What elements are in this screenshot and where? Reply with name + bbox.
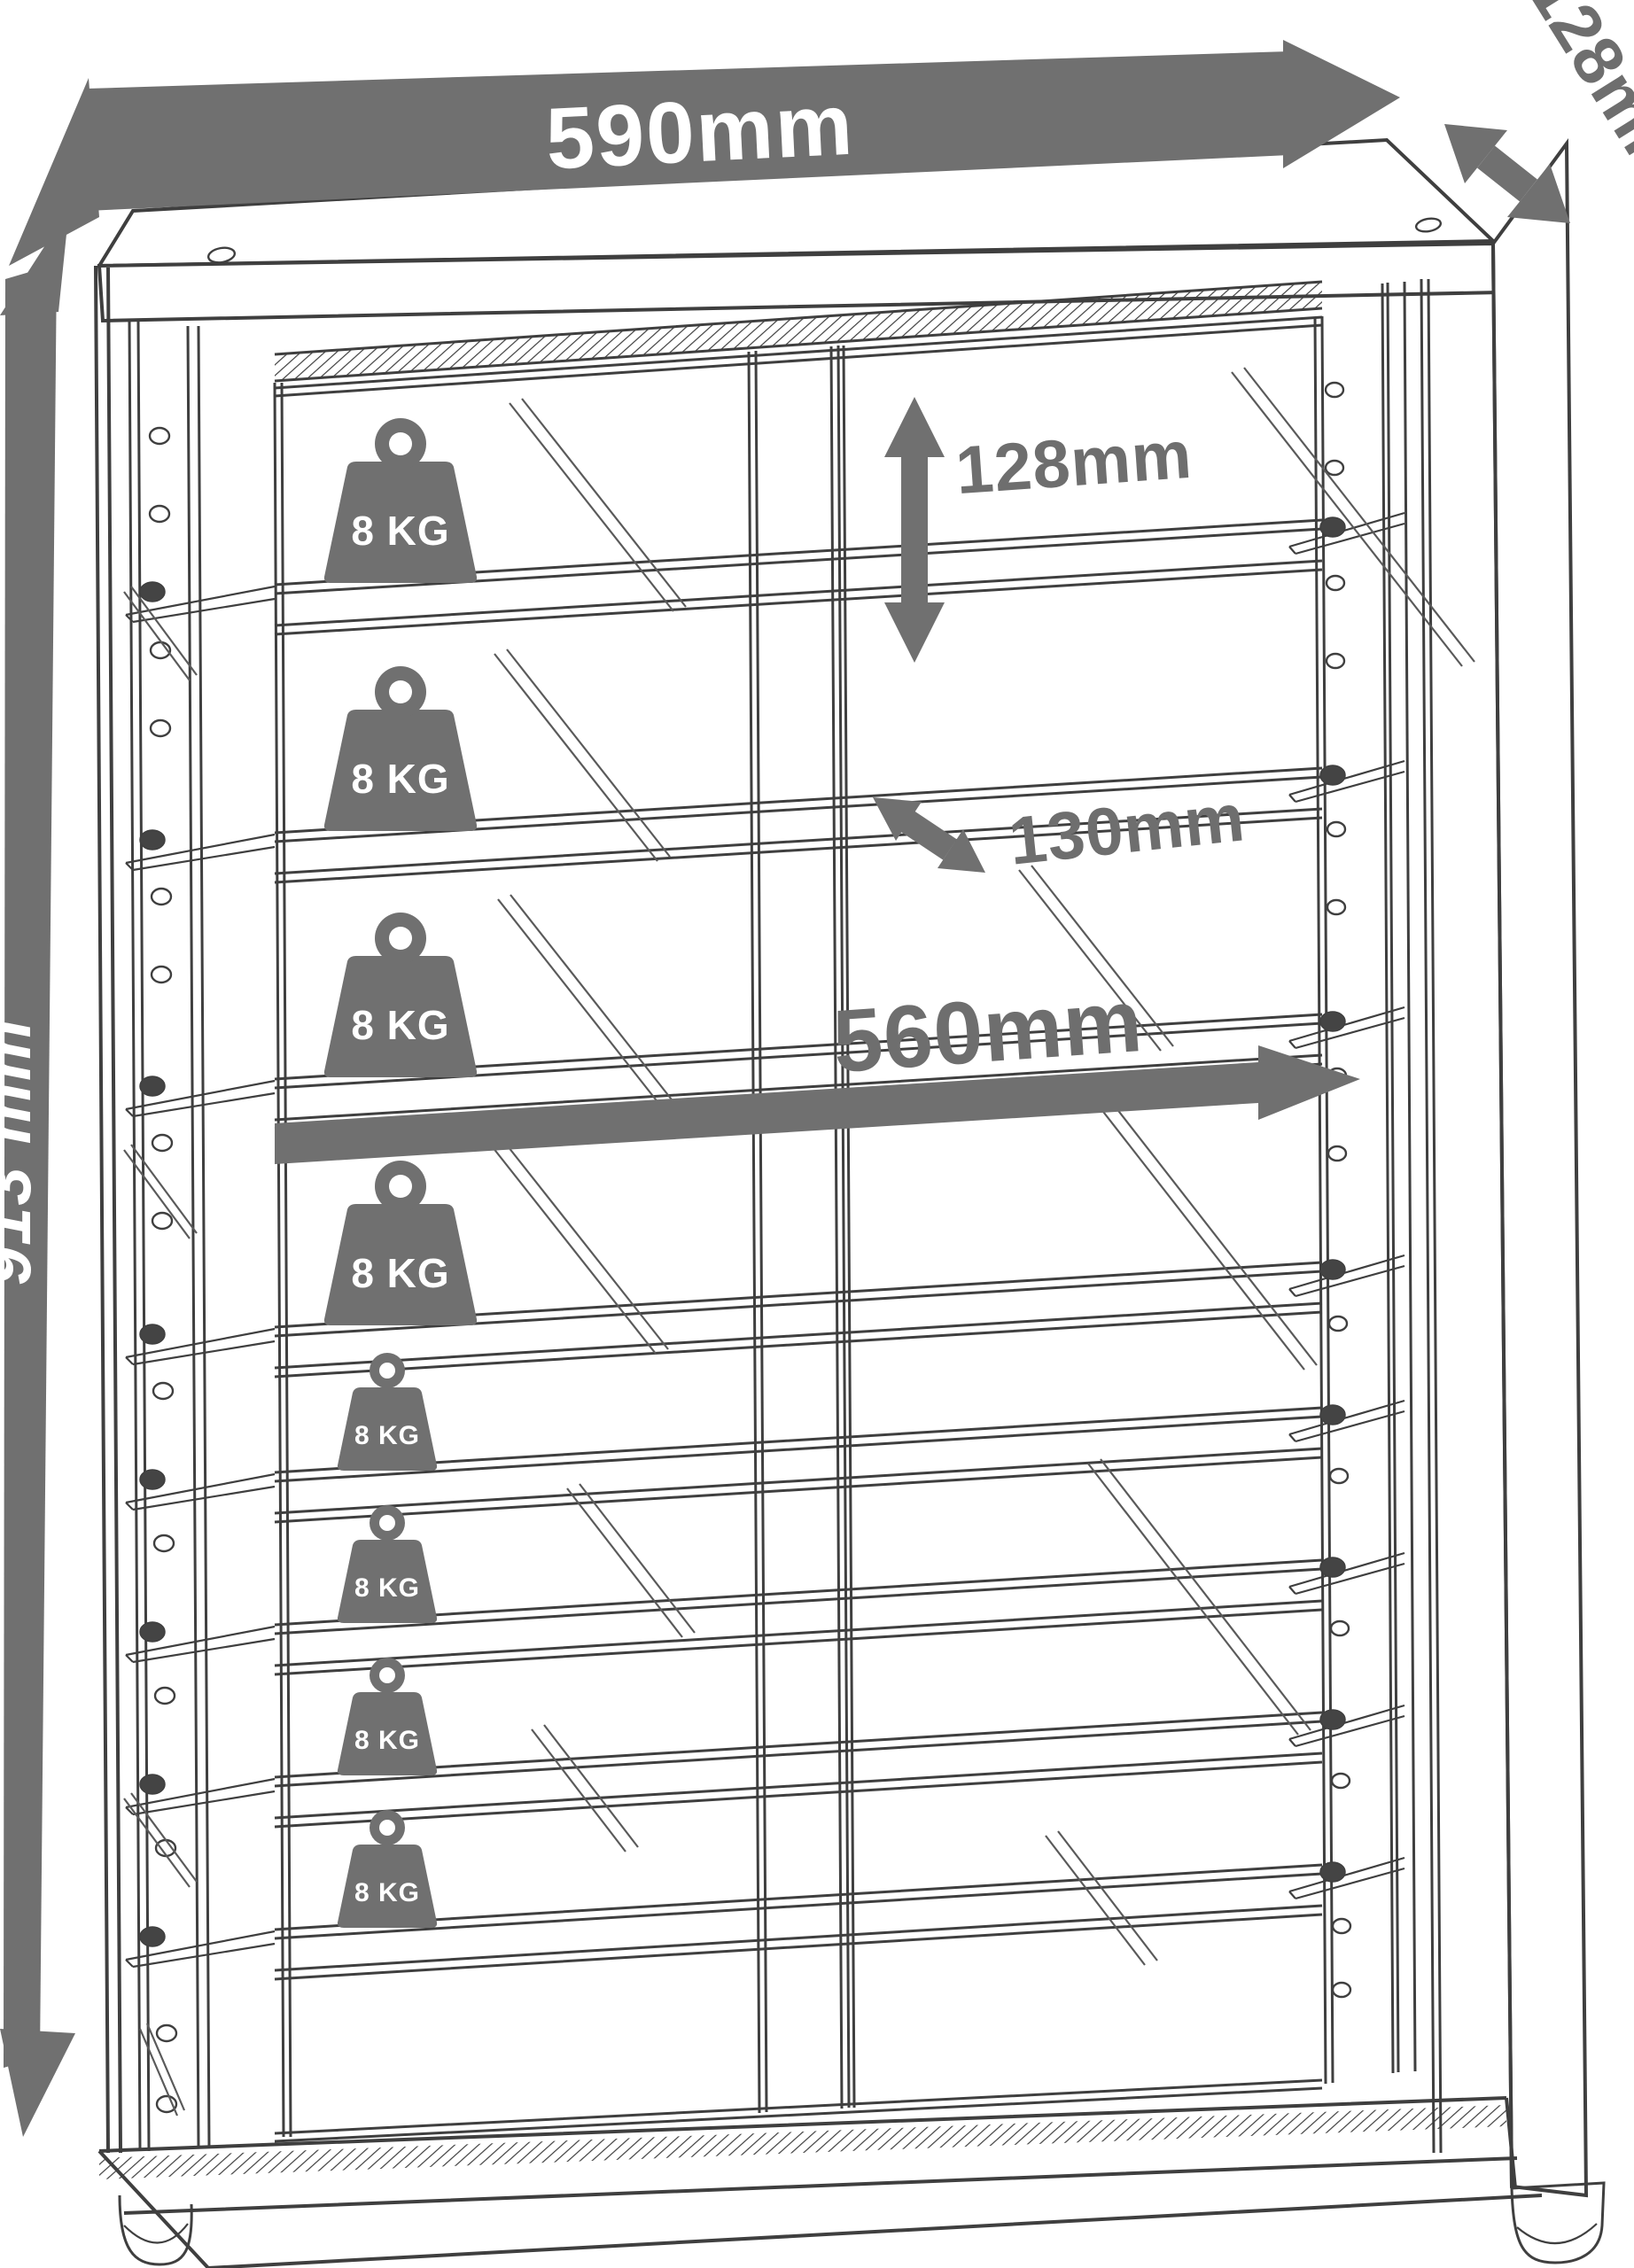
weight-icon: 8 KG [324,913,477,1077]
height-dimension-arrow: 913 mm [0,208,75,2137]
height-dimension-label: 913 mm [0,1018,45,1286]
depth-dimension-label: 128mm [1513,0,1634,204]
pin-holes-left [150,428,176,2112]
frame-verticals [96,244,1512,2186]
weight-label: 8 KG [351,508,449,554]
bottom-door-track [99,2080,1506,2179]
weight-icon: 8 KG [324,418,477,583]
weight-label: 8 KG [351,1250,449,1296]
diagram-canvas: 8 KG 8 KG 8 KG 8 KG 8 KG 8 KG 8 KG 8 KG … [0,0,1634,2268]
shelf-spacing-label: 128mm [953,417,1194,509]
depth-dimension-arrow: 128mm [1444,0,1634,223]
shelf-weights: 8 KG 8 KG 8 KG 8 KG 8 KG 8 KG 8 KG 8 KG [324,418,477,1928]
weight-label: 8 KG [354,1421,420,1450]
weight-icon: 8 KG [338,1810,437,1928]
pin-holes-right [1326,383,1350,1997]
weight-icon: 8 KG [338,1505,437,1623]
right-side-panel [1493,144,1586,2195]
weight-label: 8 KG [351,1002,449,1048]
left-foot [120,2195,191,2264]
weight-label: 8 KG [354,1878,420,1907]
width-dimension-label: 590mm [544,75,857,188]
weight-label: 8 KG [354,1726,420,1755]
cabinet-outline [96,140,1604,2268]
weight-icon: 8 KG [324,666,477,831]
weight-icon: 8 KG [324,1161,477,1325]
weight-icon: 8 KG [338,1658,437,1775]
weight-icon: 8 KG [338,1353,437,1471]
cabinet-dimension-diagram: 8 KG 8 KG 8 KG 8 KG 8 KG 8 KG 8 KG 8 KG … [0,0,1634,2268]
weight-label: 8 KG [354,1573,420,1603]
weight-label: 8 KG [351,756,449,802]
shelf-depth-arrow: 130mm [873,780,1249,879]
